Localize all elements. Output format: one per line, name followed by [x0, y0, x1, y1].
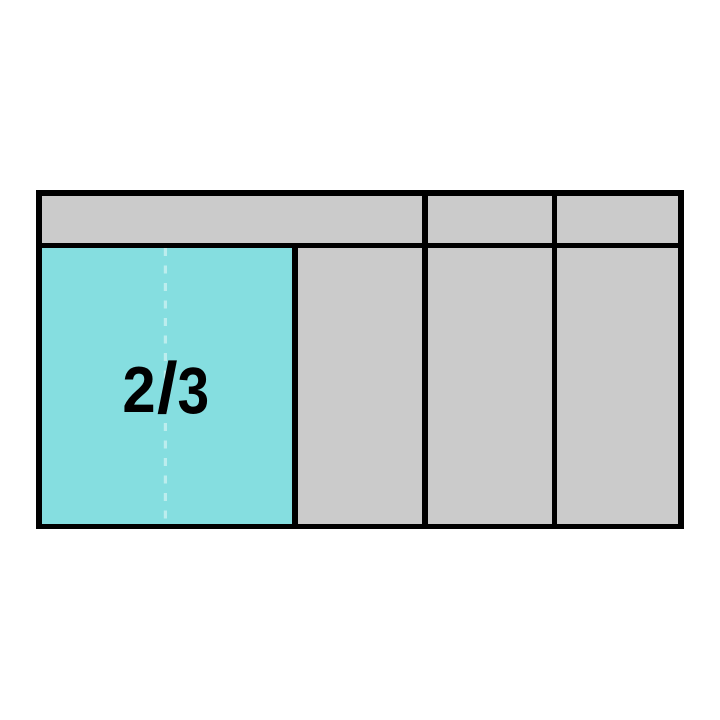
svg-text:2: 2	[122, 353, 155, 426]
svg-text:3: 3	[178, 354, 210, 428]
